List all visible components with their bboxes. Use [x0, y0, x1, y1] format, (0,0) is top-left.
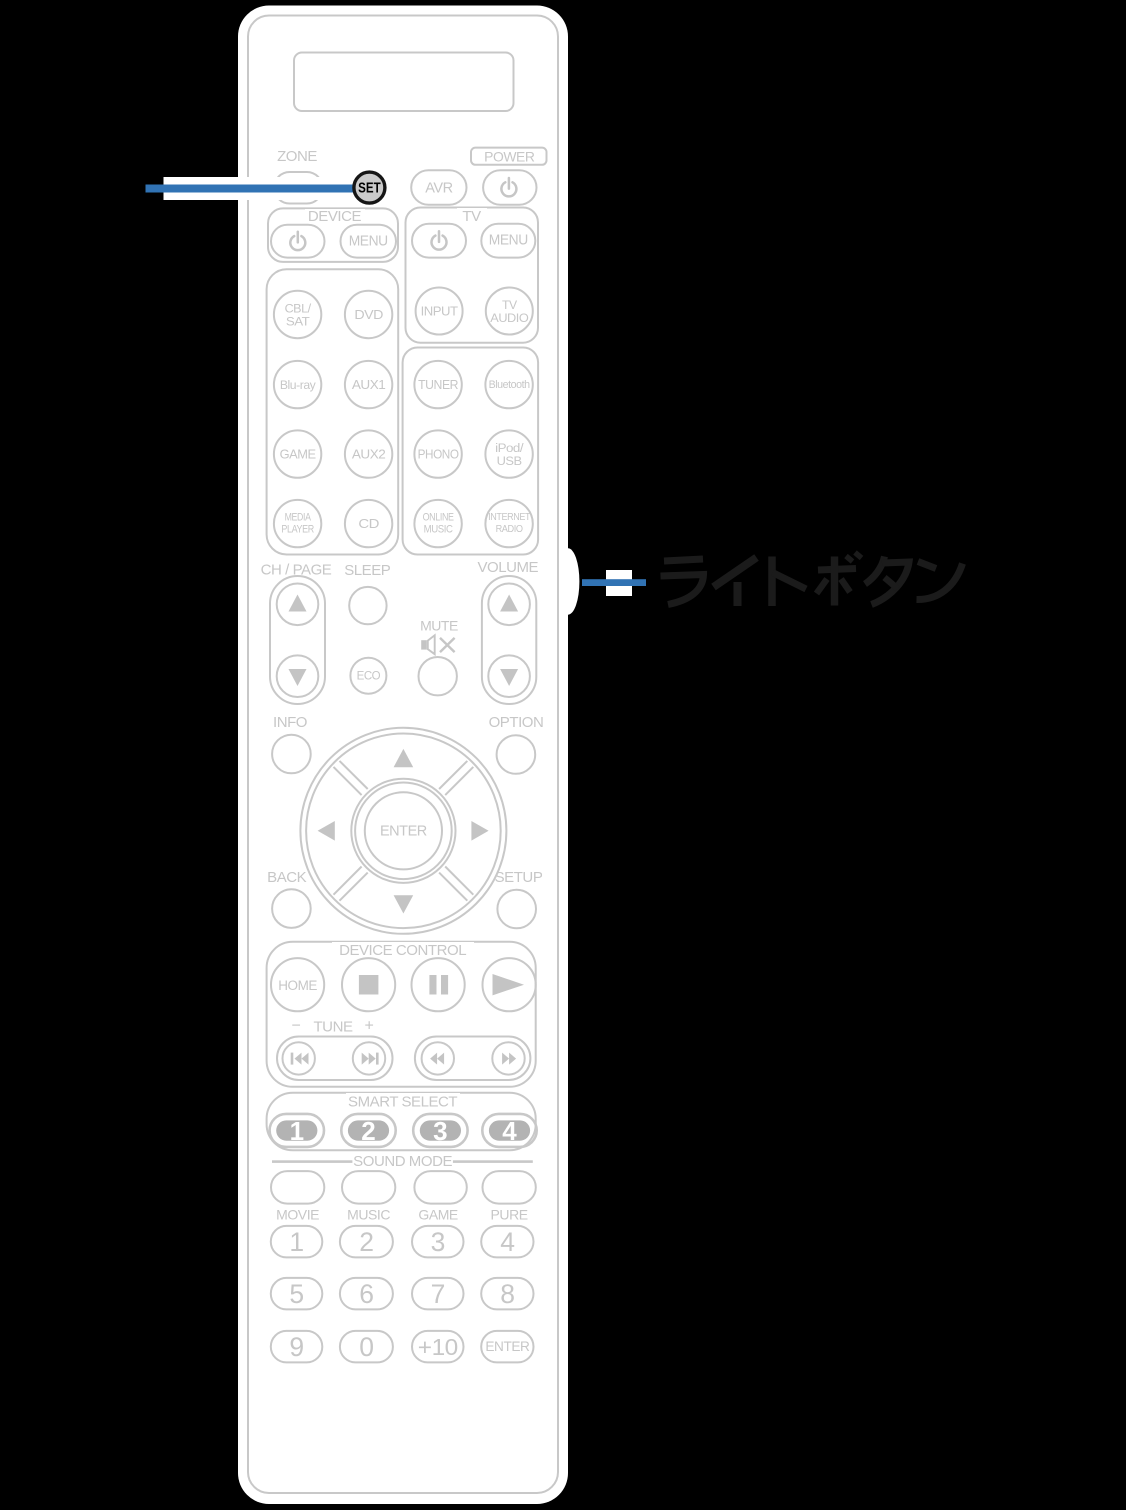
- svg-text:CD: CD: [358, 517, 379, 531]
- svg-text:AUX2: AUX2: [352, 448, 386, 462]
- svg-text:AUX1: AUX1: [352, 378, 386, 392]
- svg-text:3: 3: [431, 1227, 445, 1257]
- svg-text:DEVICE: DEVICE: [308, 208, 362, 225]
- svg-text:Bluetooth: Bluetooth: [489, 379, 530, 391]
- svg-text:ZONE: ZONE: [277, 148, 317, 165]
- svg-text:7: 7: [431, 1279, 445, 1309]
- svg-text:TUNER: TUNER: [418, 378, 458, 392]
- svg-text:VOLUME: VOLUME: [477, 559, 538, 576]
- svg-text:1: 1: [290, 1116, 304, 1146]
- svg-text:9: 9: [289, 1332, 303, 1362]
- svg-text:INFO: INFO: [273, 714, 307, 731]
- svg-text:MEDIA: MEDIA: [285, 512, 312, 524]
- svg-text:1: 1: [289, 1227, 303, 1257]
- svg-text:MOVIE: MOVIE: [276, 1207, 319, 1223]
- svg-text:MENU: MENU: [349, 234, 388, 250]
- svg-text:GAME: GAME: [280, 448, 316, 462]
- svg-text:BACK: BACK: [267, 869, 306, 886]
- svg-text:GAME: GAME: [418, 1207, 458, 1223]
- svg-text:+: +: [365, 1018, 374, 1035]
- svg-text:TV: TV: [462, 208, 481, 225]
- svg-text:TV: TV: [502, 298, 518, 312]
- svg-text:8: 8: [500, 1279, 514, 1309]
- svg-text:+10: +10: [418, 1334, 458, 1360]
- svg-text:ENTER: ENTER: [485, 1339, 529, 1354]
- svg-text:MUSIC: MUSIC: [347, 1207, 390, 1223]
- svg-text:SLEEP: SLEEP: [344, 562, 391, 579]
- svg-text:AVR: AVR: [425, 180, 453, 196]
- svg-text:PLAYER: PLAYER: [281, 524, 314, 536]
- svg-text:SAT: SAT: [286, 315, 311, 329]
- svg-text:PURE: PURE: [491, 1207, 528, 1223]
- svg-text:DEVICE CONTROL: DEVICE CONTROL: [339, 942, 466, 959]
- svg-text:Blu-ray: Blu-ray: [280, 378, 317, 392]
- svg-text:0: 0: [359, 1332, 373, 1362]
- svg-text:ECO: ECO: [357, 670, 381, 682]
- svg-text:iPod/: iPod/: [495, 441, 524, 455]
- svg-text:MUSIC: MUSIC: [424, 524, 454, 536]
- svg-text:4: 4: [500, 1227, 514, 1257]
- svg-text:AUDIO: AUDIO: [490, 311, 528, 325]
- svg-text:DVD: DVD: [354, 308, 383, 322]
- svg-text:TUNE: TUNE: [313, 1018, 352, 1035]
- svg-text:MENU: MENU: [489, 233, 528, 249]
- svg-text:SOUND MODE: SOUND MODE: [353, 1153, 452, 1170]
- svg-text:4: 4: [502, 1116, 517, 1146]
- svg-text:PHONO: PHONO: [418, 448, 460, 462]
- svg-text:SETUP: SETUP: [495, 869, 543, 886]
- svg-text:6: 6: [359, 1279, 373, 1309]
- svg-text:POWER: POWER: [484, 148, 535, 164]
- svg-text:2: 2: [361, 1116, 375, 1146]
- svg-text:USB: USB: [497, 454, 522, 468]
- svg-text:INTERNET: INTERNET: [488, 512, 530, 523]
- svg-text:OPTION: OPTION: [489, 714, 544, 731]
- svg-text:2: 2: [359, 1227, 373, 1257]
- svg-text:MUTE: MUTE: [420, 618, 458, 634]
- svg-text:−: −: [292, 1018, 301, 1035]
- svg-text:5: 5: [289, 1279, 303, 1309]
- svg-text:HOME: HOME: [278, 978, 317, 993]
- svg-text:RADIO: RADIO: [496, 524, 524, 535]
- svg-text:SMART SELECT: SMART SELECT: [348, 1094, 457, 1111]
- svg-text:CBL/: CBL/: [285, 302, 312, 316]
- svg-text:INPUT: INPUT: [421, 305, 459, 319]
- svg-text:ONLINE: ONLINE: [423, 512, 454, 524]
- svg-text:ENTER: ENTER: [380, 823, 427, 839]
- svg-text:SET: SET: [358, 180, 381, 196]
- svg-text:3: 3: [433, 1116, 447, 1146]
